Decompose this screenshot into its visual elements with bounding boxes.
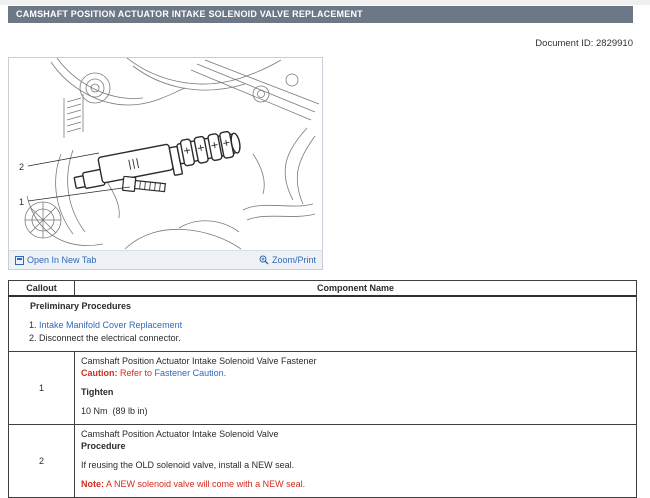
table-row: 1 Camshaft Position Actuator Intake Sole…	[9, 352, 637, 425]
fastener-caution-link[interactable]: Fastener Caution	[155, 368, 224, 378]
preliminary-procedures-row: Preliminary Procedures Intake Manifold C…	[9, 296, 637, 352]
intake-manifold-cover-replacement-link[interactable]: Intake Manifold Cover Replacement	[39, 320, 182, 330]
zoom-print-label: Zoom/Print	[272, 255, 316, 265]
procedure-subheading: Procedure	[81, 440, 630, 452]
page-title: CAMSHAFT POSITION ACTUATOR INTAKE SOLENO…	[8, 6, 633, 23]
callout-column-header: Callout	[9, 281, 75, 297]
preliminary-procedures-list: Intake Manifold Cover Replacement Discon…	[24, 319, 630, 345]
component-name-column-header: Component Name	[75, 281, 637, 297]
tighten-subheading: Tighten	[81, 386, 630, 398]
table-row: 2 Camshaft Position Actuator Intake Sole…	[9, 425, 637, 498]
component-title: Camshaft Position Actuator Intake Soleno…	[81, 428, 630, 440]
zoom-print-link[interactable]: Zoom/Print	[259, 255, 316, 265]
preliminary-procedures-title: Preliminary Procedures	[30, 301, 630, 311]
torque-spec: 10 Nm (89 lb in)	[81, 405, 630, 417]
open-in-new-tab-label: Open In New Tab	[27, 255, 96, 265]
figure-toolbar: Open In New Tab Zoom/Print	[9, 250, 322, 269]
engine-line-art: 2 1	[9, 58, 322, 250]
component-table: Callout Component Name Preliminary Proce…	[8, 280, 637, 498]
open-in-new-tab-icon	[15, 256, 24, 265]
zoom-magnifier-icon	[259, 255, 269, 265]
note-label: Note:	[81, 479, 104, 489]
caution-label: Caution:	[81, 368, 118, 378]
caution-period: .	[224, 368, 227, 378]
document-id: Document ID: 2829910	[535, 38, 633, 49]
open-in-new-tab-link[interactable]: Open In New Tab	[15, 255, 96, 265]
figure-panel: 2 1 Open In New Tab Zoom/Print	[8, 57, 323, 270]
engine-diagram: 2 1	[9, 58, 322, 250]
caution-line: Caution: Refer to Fastener Caution.	[81, 367, 630, 379]
callout-number: 1	[9, 352, 75, 425]
procedure-text: If reusing the OLD solenoid valve, insta…	[81, 459, 630, 471]
caution-text: Refer to	[120, 368, 152, 378]
component-title: Camshaft Position Actuator Intake Soleno…	[81, 355, 630, 367]
top-strip	[0, 0, 650, 5]
note-text: A NEW solenoid valve will come with a NE…	[106, 479, 305, 489]
note-line: Note: A NEW solenoid valve will come wit…	[81, 478, 630, 490]
list-item: Disconnect the electrical connector.	[39, 332, 630, 345]
figure-callout-1: 1	[19, 197, 24, 207]
callout-number: 2	[9, 425, 75, 498]
figure-callout-2: 2	[19, 162, 24, 172]
list-item: Intake Manifold Cover Replacement	[39, 319, 630, 332]
table-header-row: Callout Component Name	[9, 281, 637, 297]
